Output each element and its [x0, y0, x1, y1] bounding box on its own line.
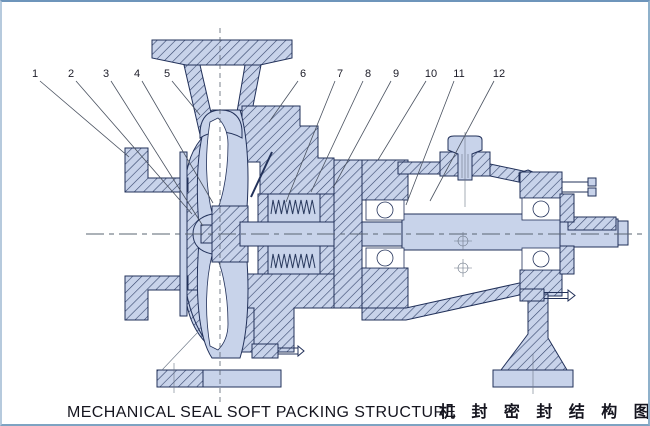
part-number-1: 1	[32, 68, 38, 80]
bearing-ball	[377, 202, 393, 218]
bearing-end-cap	[560, 194, 574, 222]
part-number-7: 7	[337, 68, 343, 80]
caption: MECHANICAL SEAL SOFT PACKING STRUCTURE 机…	[67, 402, 650, 421]
shaft-end-tip	[618, 221, 628, 245]
shaft-key	[568, 217, 616, 230]
pump-cross-section-diagram: 123456789101112 MECHANICAL SEAL SOFT PAC…	[2, 2, 650, 426]
part-number-3: 3	[103, 68, 109, 80]
part-number-10: 10	[425, 68, 437, 80]
part-number-9: 9	[393, 68, 399, 80]
bearing-ball	[533, 251, 549, 267]
caption-chinese: 机 封 密 封 结 构 图	[439, 402, 650, 421]
page: 123456789101112 MECHANICAL SEAL SOFT PAC…	[0, 0, 650, 426]
part-number-11: 11	[453, 68, 464, 80]
part-number-6: 6	[300, 68, 306, 80]
caption-english: MECHANICAL SEAL SOFT PACKING STRUCTURE	[67, 404, 456, 421]
part-number-8: 8	[365, 68, 371, 80]
part-number-2: 2	[68, 68, 74, 80]
part-number-12: 12	[493, 68, 505, 80]
bearing-end-cap	[560, 246, 574, 274]
bearing-ball	[533, 201, 549, 217]
part-number-4: 4	[134, 68, 140, 80]
part-number-5: 5	[164, 68, 170, 80]
bearing-ball	[377, 250, 393, 266]
